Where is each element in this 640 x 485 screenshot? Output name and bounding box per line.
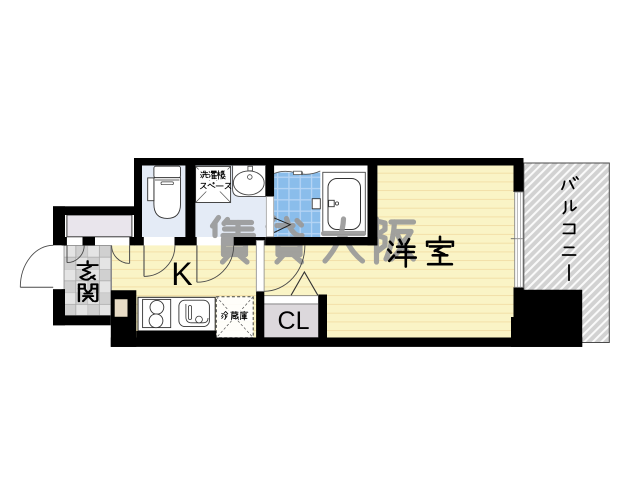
svg-text:CL: CL (278, 307, 310, 335)
svg-text:K: K (171, 256, 192, 292)
